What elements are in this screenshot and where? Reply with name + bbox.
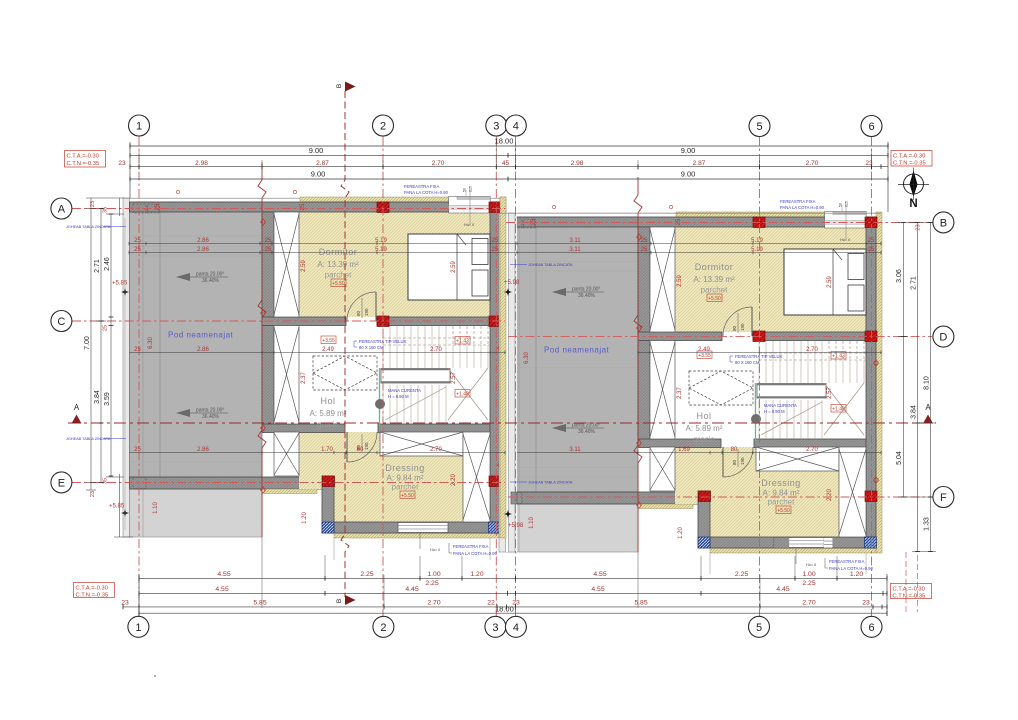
svg-text:C.T.A.=-0.30: C.T.A.=-0.30 (76, 586, 108, 592)
svg-text:9.00: 9.00 (681, 146, 696, 155)
svg-text:25: 25 (265, 238, 272, 244)
svg-text:23: 23 (916, 224, 922, 230)
svg-text:4.45: 4.45 (405, 586, 418, 593)
svg-text:25: 25 (134, 247, 141, 253)
svg-text:F: F (940, 492, 947, 504)
svg-text:N: N (909, 198, 917, 210)
svg-text:2.70: 2.70 (802, 600, 815, 607)
svg-text:2.25: 2.25 (802, 580, 815, 587)
svg-text:25: 25 (134, 347, 141, 353)
svg-text:2.46: 2.46 (104, 257, 111, 271)
svg-text:2.70: 2.70 (430, 447, 442, 453)
svg-text:25: 25 (492, 247, 499, 253)
svg-text:2.86: 2.86 (197, 347, 209, 353)
svg-text:9.00: 9.00 (681, 170, 696, 179)
svg-text:5: 5 (756, 121, 762, 133)
svg-text:2: 2 (380, 622, 386, 634)
svg-text:2.25: 2.25 (735, 571, 748, 578)
svg-text:3: 3 (492, 622, 498, 634)
svg-text:9.00: 9.00 (309, 146, 324, 155)
svg-text:5.04: 5.04 (896, 451, 903, 465)
svg-text:2.49: 2.49 (698, 347, 710, 353)
svg-text:2.71: 2.71 (94, 259, 101, 273)
svg-text:JGHEAB TABLA ZINCATA: JGHEAB TABLA ZINCATA (528, 481, 573, 485)
svg-text:2.87: 2.87 (693, 160, 706, 167)
svg-text:2.49: 2.49 (322, 347, 334, 353)
svg-text:23: 23 (90, 491, 96, 497)
svg-text:22: 22 (487, 600, 495, 607)
svg-text:1.70: 1.70 (321, 447, 333, 453)
svg-text:3.11: 3.11 (569, 247, 581, 253)
svg-text:1.20: 1.20 (470, 571, 483, 578)
svg-text:18.00: 18.00 (495, 137, 514, 146)
svg-text:25: 25 (641, 238, 648, 244)
svg-text:JGHEAB TABLA ZINCATA: JGHEAB TABLA ZINCATA (66, 437, 111, 441)
svg-text:4.55: 4.55 (215, 586, 228, 593)
svg-text:6: 6 (868, 121, 874, 133)
svg-text:25: 25 (641, 247, 648, 253)
svg-text:2: 2 (380, 121, 386, 133)
svg-text:4.45: 4.45 (776, 586, 789, 593)
svg-text:25: 25 (868, 238, 875, 244)
svg-text:1.00: 1.00 (802, 571, 815, 578)
svg-text:JGHEAB TABLA ZINCATA: JGHEAB TABLA ZINCATA (528, 263, 573, 267)
svg-text:45: 45 (502, 160, 510, 167)
svg-text:2.70: 2.70 (430, 347, 442, 353)
svg-text:23: 23 (118, 160, 126, 167)
svg-text:2.98: 2.98 (195, 160, 208, 167)
svg-text:4.55: 4.55 (591, 586, 604, 593)
svg-text:2.70: 2.70 (806, 447, 818, 453)
svg-text:5.85: 5.85 (634, 600, 647, 607)
svg-text:+5.98: +5.98 (508, 523, 524, 529)
svg-text:4: 4 (513, 121, 519, 133)
svg-text:1.33: 1.33 (924, 517, 931, 531)
svg-text:E: E (58, 477, 65, 489)
svg-text:1.69: 1.69 (678, 447, 690, 453)
svg-text:1: 1 (136, 121, 142, 133)
svg-text:B: B (336, 599, 343, 603)
svg-text:2.86: 2.86 (197, 238, 209, 244)
svg-text:25: 25 (134, 238, 141, 244)
svg-text:25: 25 (492, 238, 499, 244)
svg-text:3.59: 3.59 (104, 392, 111, 406)
svg-text:25: 25 (265, 247, 272, 253)
svg-text:1.00: 1.00 (427, 571, 440, 578)
svg-text:23: 23 (90, 201, 96, 207)
svg-text:2.86: 2.86 (197, 247, 209, 253)
svg-text:3.11: 3.11 (569, 238, 581, 244)
svg-text:4.55: 4.55 (593, 571, 606, 578)
svg-text:3: 3 (493, 121, 499, 133)
svg-text:9.00: 9.00 (311, 170, 326, 179)
svg-text:23: 23 (121, 600, 129, 607)
svg-text:1.20: 1.20 (850, 571, 863, 578)
svg-text:C.T.N.=-0.35: C.T.N.=-0.35 (67, 161, 100, 167)
svg-text:3.84: 3.84 (911, 405, 918, 419)
svg-text:23: 23 (862, 600, 870, 607)
svg-text:B: B (336, 84, 343, 88)
svg-text:3.06: 3.06 (896, 269, 903, 283)
svg-text:6: 6 (868, 622, 874, 634)
svg-text:D: D (939, 332, 947, 344)
svg-text:3.84: 3.84 (94, 390, 101, 404)
svg-text:+5.85: +5.85 (109, 504, 125, 510)
svg-text:7.00: 7.00 (84, 336, 91, 350)
svg-text:C.T.A.=-0.30: C.T.A.=-0.30 (893, 587, 925, 593)
svg-text:2.70: 2.70 (806, 160, 819, 167)
svg-text:+5.98: +5.98 (504, 280, 520, 286)
svg-text:JGHEAB TABLA ZINCATA: JGHEAB TABLA ZINCATA (66, 225, 111, 229)
svg-text:2.70: 2.70 (432, 160, 445, 167)
svg-text:8.10: 8.10 (924, 376, 931, 390)
svg-text:5: 5 (756, 622, 762, 634)
svg-text:25: 25 (134, 447, 141, 453)
svg-text:2.25: 2.25 (360, 571, 373, 578)
svg-text:25: 25 (103, 325, 109, 331)
svg-text:C.T.A.=-0.30: C.T.A.=-0.30 (67, 154, 99, 160)
svg-text:C.T.N.=-0.35: C.T.N.=-0.35 (893, 161, 926, 167)
svg-text:1: 1 (135, 622, 141, 634)
svg-text:A: A (58, 204, 66, 216)
svg-text:C: C (57, 316, 65, 328)
svg-text:2.87: 2.87 (316, 160, 329, 167)
svg-text:C.T.N.=-0.35: C.T.N.=-0.35 (76, 593, 109, 599)
svg-text:2.98: 2.98 (571, 160, 584, 167)
svg-text:2.25: 2.25 (425, 580, 438, 587)
svg-text:25: 25 (868, 247, 875, 253)
svg-text:2.70: 2.70 (427, 600, 440, 607)
svg-text:2.86: 2.86 (197, 447, 209, 453)
svg-text:4.55: 4.55 (217, 571, 230, 578)
svg-text:80: 80 (731, 447, 738, 453)
svg-text:2.70: 2.70 (806, 347, 818, 353)
svg-text:80: 80 (357, 447, 364, 453)
svg-text:18.00: 18.00 (495, 605, 514, 614)
svg-text:35: 35 (103, 207, 109, 213)
svg-text:4: 4 (513, 622, 519, 634)
svg-text:5.85: 5.85 (253, 600, 266, 607)
svg-text:+5.85: +5.85 (112, 281, 128, 287)
svg-text:2.71: 2.71 (911, 276, 918, 290)
svg-text:B: B (940, 217, 947, 229)
svg-text:A: A (74, 403, 80, 412)
svg-text:3.11: 3.11 (569, 447, 581, 453)
svg-text:C.T.A.=-0.30: C.T.A.=-0.30 (893, 154, 925, 160)
svg-text:C.T.N.=-0.35: C.T.N.=-0.35 (893, 594, 926, 600)
svg-text:35: 35 (103, 478, 109, 484)
